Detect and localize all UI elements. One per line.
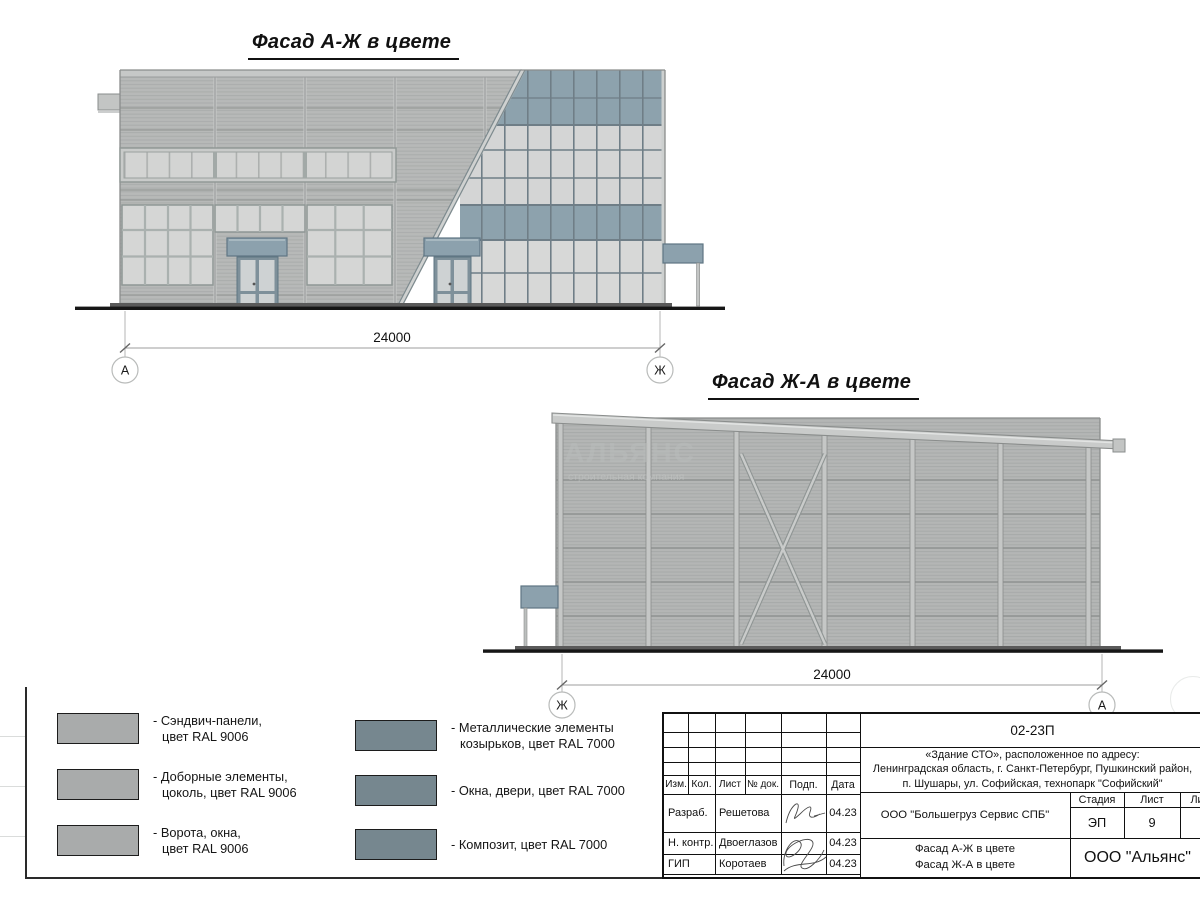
legend-label: - Окна, двери, цвет RAL 7000 xyxy=(451,783,625,799)
sheet-title: Фасад А-Ж в цвете Фасад Ж-А в цвете xyxy=(860,838,1070,877)
date-3: 04.23 xyxy=(826,854,860,874)
name-korotaev: Коротаев xyxy=(719,854,781,874)
stage-value: ЭП xyxy=(1070,807,1124,838)
curtain-wall xyxy=(460,70,665,308)
sheet-title-line: Фасад Ж-А в цвете xyxy=(915,858,1015,873)
legend-item-windows: - Окна, двери, цвет RAL 7000 xyxy=(355,775,625,806)
dimension-row: 24000 А Ж xyxy=(112,311,673,383)
col-kol: Кол. xyxy=(688,775,715,794)
date-2: 04.23 xyxy=(826,832,860,854)
legend-label: цвет RAL 9006 xyxy=(162,841,249,857)
date-1: 04.23 xyxy=(826,794,860,832)
diagonal-edge xyxy=(397,70,526,308)
col-list: Лист xyxy=(715,775,745,794)
legend-label: - Доборные элементы, xyxy=(153,769,297,785)
address-line: «Здание СТО», расположенное по адресу: xyxy=(873,748,1192,762)
ground-line xyxy=(483,646,1163,653)
facade-aj-title: Фасад А-Ж в цвете xyxy=(248,31,459,60)
axis-marker-a: А xyxy=(1098,699,1107,713)
svg-text:строительная компания: строительная компания xyxy=(568,471,684,483)
address-line: п. Шушары, ул. Софийская, технопарк "Соф… xyxy=(873,777,1192,791)
ribbon-window-strip xyxy=(120,148,396,182)
ral7000-swatch xyxy=(355,829,437,860)
facade-ja-drawing: АЛЬЯНС строительная компания 24000 Ж А xyxy=(480,398,1170,728)
margin-tick xyxy=(0,736,25,737)
project-address: «Здание СТО», расположенное по адресу: Л… xyxy=(860,747,1200,792)
legend-item-composite: - Композит, цвет RAL 7000 xyxy=(355,829,607,860)
ral9006-swatch xyxy=(57,713,139,744)
legend-label: - Композит, цвет RAL 7000 xyxy=(451,837,607,853)
window-grid-middle xyxy=(215,205,305,232)
margin-tick xyxy=(0,786,25,787)
role-gip: ГИП xyxy=(668,854,715,874)
customer-name: ООО "Большегруз Сервис СПБ" xyxy=(860,792,1070,838)
legend-label: - Металлические элементы xyxy=(451,720,615,736)
columns xyxy=(558,420,1091,650)
sheets-label: Листов xyxy=(1180,792,1200,807)
signature-1 xyxy=(780,795,828,832)
col-ndok: № док. xyxy=(745,775,781,794)
building-outline xyxy=(120,70,665,308)
side-canopy xyxy=(663,244,703,306)
legend-item-dobor: - Доборные элементы, цоколь, цвет RAL 90… xyxy=(57,769,297,800)
legend-item-sandwich: - Сэндвич-панели, цвет RAL 9006 xyxy=(57,713,262,744)
ral7000-swatch xyxy=(355,720,437,751)
legend-label: цвет RAL 9006 xyxy=(162,729,262,745)
axis-marker-j: Ж xyxy=(654,364,666,378)
legend-label: цоколь, цвет RAL 9006 xyxy=(162,785,297,801)
sandwich-panel-wall xyxy=(120,70,523,308)
roof-beam xyxy=(552,413,1125,452)
legend-label: - Сэндвич-панели, xyxy=(153,713,262,729)
legend-label: козырьков, цвет RAL 7000 xyxy=(460,736,615,752)
ral9006-swatch xyxy=(57,825,139,856)
ground-line xyxy=(75,303,725,310)
col-podp: Подп. xyxy=(781,775,826,794)
dimension-label: 24000 xyxy=(813,667,851,682)
title-block: Изм. Кол. Лист № док. Подп. Дата Разраб.… xyxy=(662,712,1200,879)
name-dvoeglazov: Двоеглазов xyxy=(719,832,781,854)
hangar-wall xyxy=(556,418,1100,650)
axis-marker-j: Ж xyxy=(556,699,568,713)
alliance-watermark: АЛЬЯНС строительная компания xyxy=(564,437,696,483)
sheet-title-line: Фасад А-Ж в цвете xyxy=(915,842,1015,857)
role-razrab: Разраб. xyxy=(668,794,715,832)
svg-text:АЛЬЯНС: АЛЬЯНС xyxy=(564,437,696,468)
window-grid-right xyxy=(307,205,392,285)
sheet-frame-left xyxy=(25,687,27,879)
company-name: ООО "Альянс" xyxy=(1070,838,1200,877)
x-bracing xyxy=(741,454,825,644)
wall-protrusion xyxy=(98,94,128,112)
legend-item-metal: - Металлические элементы козырьков, цвет… xyxy=(355,720,615,751)
entrance-door-2 xyxy=(424,238,480,308)
role-nkontr: Н. контр. xyxy=(668,832,715,854)
stage-label: Стадия xyxy=(1070,792,1124,807)
col-data: Дата xyxy=(826,775,860,794)
name-reshetova: Решетова xyxy=(719,794,781,832)
signature-2 xyxy=(776,830,830,876)
legend-item-gates: - Ворота, окна, цвет RAL 9006 xyxy=(57,825,249,856)
sheet-value: 9 xyxy=(1124,807,1180,838)
margin-tick xyxy=(0,836,25,837)
sheets-value: 21 xyxy=(1180,807,1200,838)
sheet-label: Лист xyxy=(1124,792,1180,807)
rear-canopy xyxy=(521,586,558,647)
doc-number: 02-23П xyxy=(860,714,1200,747)
facade-ja-title: Фасад Ж-А в цвете xyxy=(708,371,919,400)
dimension-row: 24000 Ж А xyxy=(549,654,1115,718)
ral7000-swatch xyxy=(355,775,437,806)
legend-label: - Ворота, окна, xyxy=(153,825,249,841)
axis-marker-a: А xyxy=(121,364,130,378)
dimension-label: 24000 xyxy=(373,330,411,345)
address-line: Ленинградская область, г. Санкт-Петербур… xyxy=(873,762,1192,776)
ral9006-swatch xyxy=(57,769,139,800)
window-grid-left xyxy=(122,205,213,285)
entrance-door-1 xyxy=(227,238,287,308)
col-izm: Изм. xyxy=(664,775,688,794)
panel-joints xyxy=(214,70,487,308)
facade-aj-drawing: 24000 А Ж xyxy=(60,58,740,388)
